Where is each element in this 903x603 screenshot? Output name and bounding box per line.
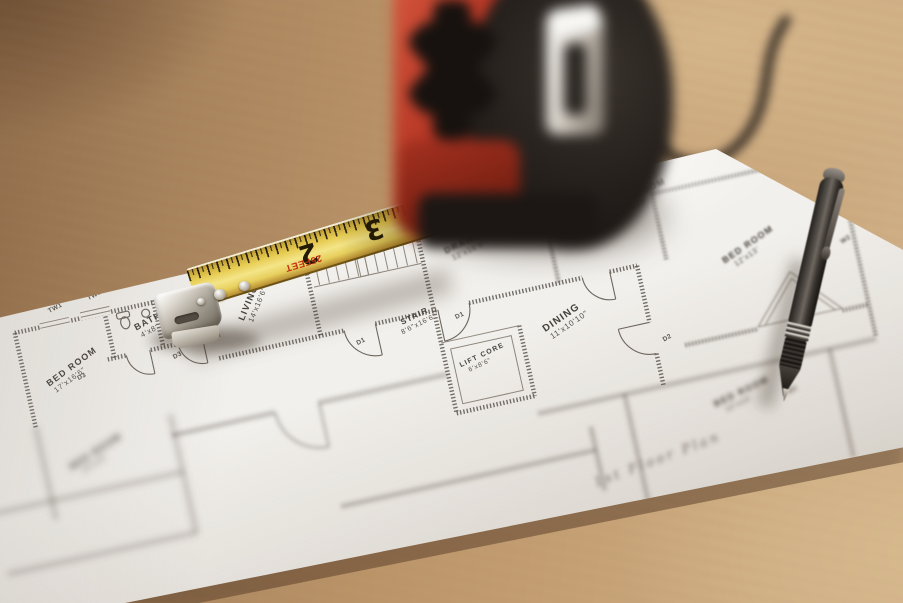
belt-clip-notch xyxy=(564,43,586,115)
blade-rivet xyxy=(239,281,250,291)
pen-tip-point xyxy=(780,388,790,402)
tape-body-dark-base xyxy=(418,193,598,248)
photo-scene: BATH 4'x8' BATH 4'6"x8' LIVING 14'x16'6"… xyxy=(0,0,903,603)
tape-measure-body xyxy=(378,0,678,255)
blade-rivet xyxy=(214,289,226,300)
blade-rivet xyxy=(197,298,205,305)
